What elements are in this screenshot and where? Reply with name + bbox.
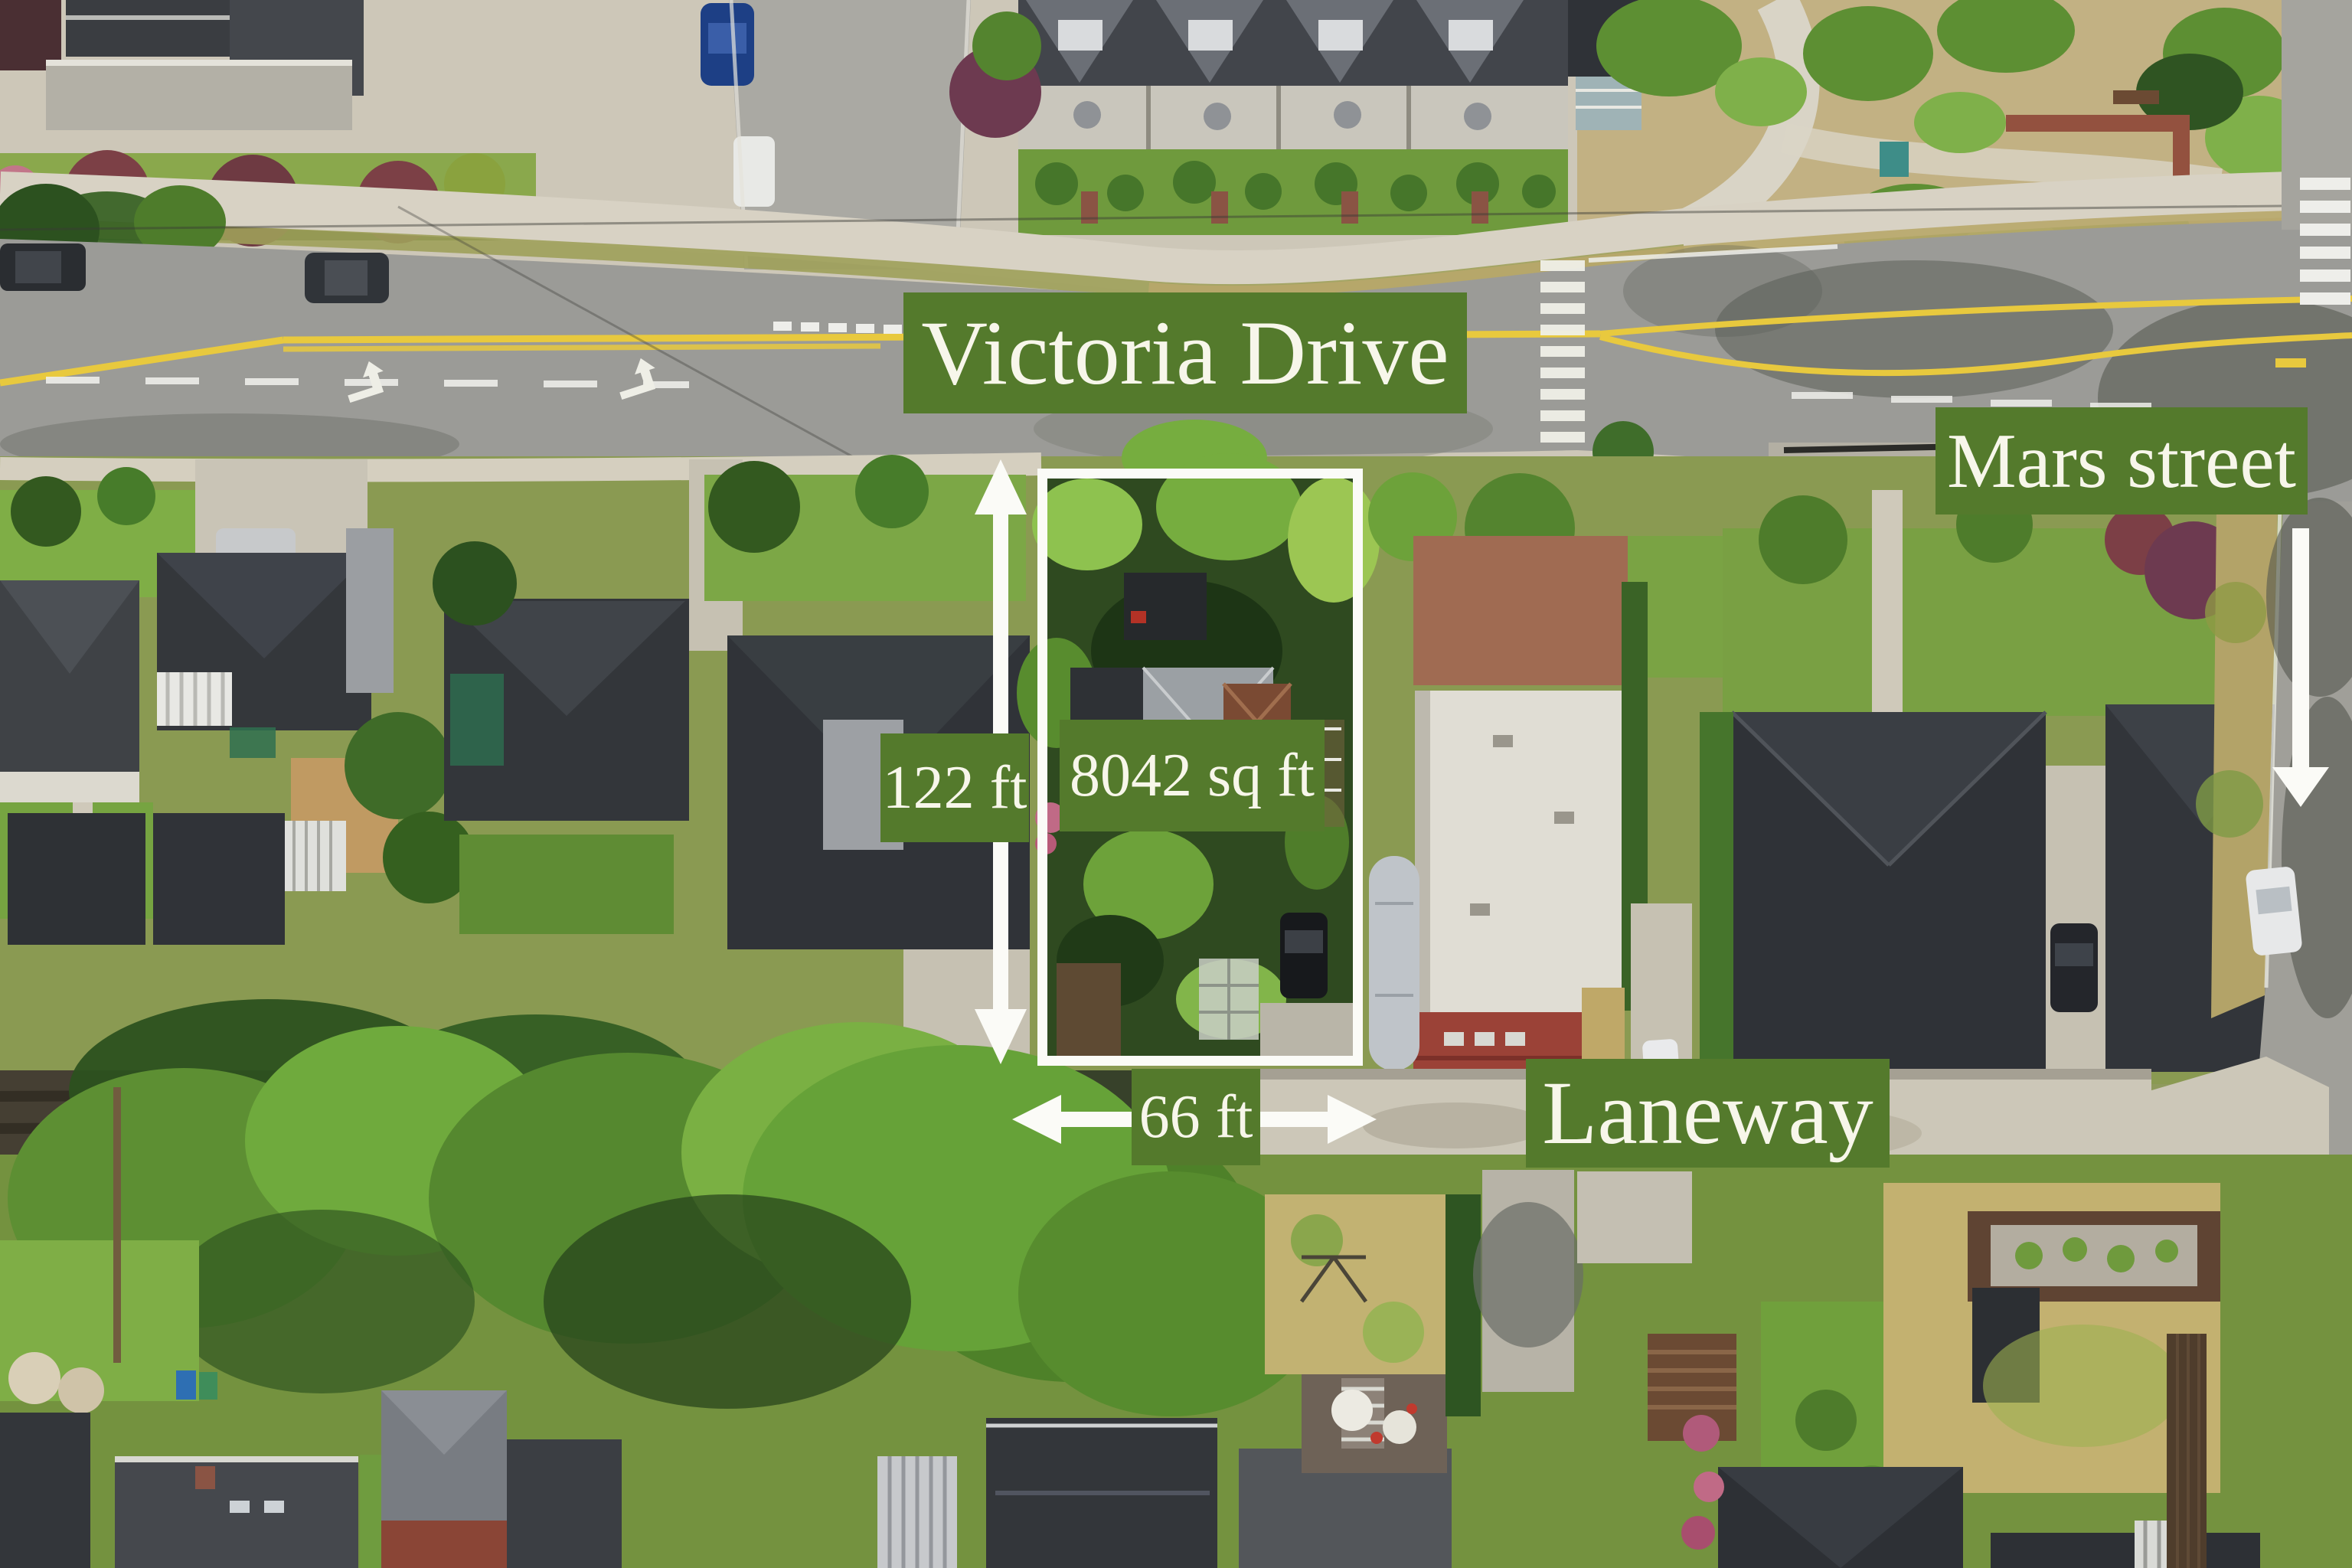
townhouse-row xyxy=(949,0,1568,235)
zebra-crosswalk xyxy=(1540,260,1585,443)
down-arrow-icon xyxy=(975,1009,1027,1064)
arrow-shaft xyxy=(2292,528,2309,770)
street-label-mars-street: Mars street xyxy=(1935,407,2308,514)
laneway-label: Laneway xyxy=(1526,1059,1890,1168)
aerial-lot-annotation-image: Victoria Drive Mars street 122 ft 8042 s… xyxy=(0,0,2352,1568)
airstream-trailer xyxy=(1369,856,1419,1070)
right-arrow-icon xyxy=(1328,1095,1377,1144)
lot-area-label: 8042 sq ft xyxy=(1060,720,1325,831)
mars-street-direction-arrow xyxy=(2272,528,2329,807)
down-arrow-icon xyxy=(2272,767,2329,807)
lot-depth-label: 122 ft xyxy=(880,733,1029,842)
car-on-road xyxy=(305,253,389,303)
lot-width-label: 66 ft xyxy=(1132,1069,1260,1165)
street-label-victoria-drive: Victoria Drive xyxy=(903,292,1467,413)
left-arrow-icon xyxy=(1012,1095,1061,1144)
